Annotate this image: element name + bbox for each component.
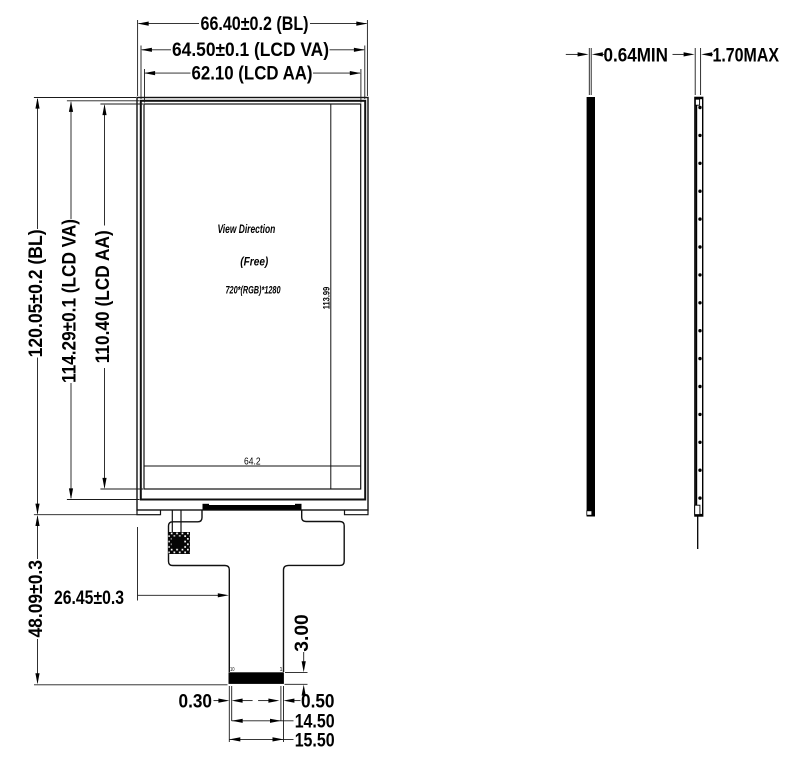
svg-text:10: 10	[230, 667, 235, 673]
svg-text:113.99: 113.99	[321, 287, 332, 310]
svg-text:66.40±0.2 (BL): 66.40±0.2 (BL)	[201, 14, 309, 35]
svg-text:48.09±0.3: 48.09±0.3	[26, 560, 47, 638]
svg-text:View Direction: View Direction	[218, 223, 276, 236]
svg-text:64.2: 64.2	[244, 457, 261, 468]
svg-text:114.29±0.1 (LCD VA): 114.29±0.1 (LCD VA)	[60, 219, 81, 383]
svg-text:1.70MAX: 1.70MAX	[713, 46, 780, 67]
svg-text:14.50: 14.50	[295, 711, 335, 732]
svg-text:64.50±0.1 (LCD VA): 64.50±0.1 (LCD VA)	[172, 40, 329, 61]
svg-text:15.50: 15.50	[295, 730, 335, 751]
svg-text:110.40 (LCD AA): 110.40 (LCD AA)	[93, 230, 114, 363]
svg-text:62.10 (LCD AA): 62.10 (LCD AA)	[192, 63, 313, 84]
svg-text:0.30: 0.30	[179, 691, 213, 712]
svg-text:120.05±0.2 (BL): 120.05±0.2 (BL)	[26, 229, 47, 357]
svg-text:3.00: 3.00	[292, 614, 313, 652]
svg-text:0.64MIN: 0.64MIN	[604, 46, 669, 67]
svg-text:720*(RGB)*1280: 720*(RGB)*1280	[226, 285, 282, 297]
svg-text:26.45±0.3: 26.45±0.3	[54, 588, 124, 609]
svg-text:1: 1	[280, 667, 283, 673]
svg-text:(Free): (Free)	[240, 256, 268, 269]
svg-text:0.50: 0.50	[301, 691, 335, 712]
